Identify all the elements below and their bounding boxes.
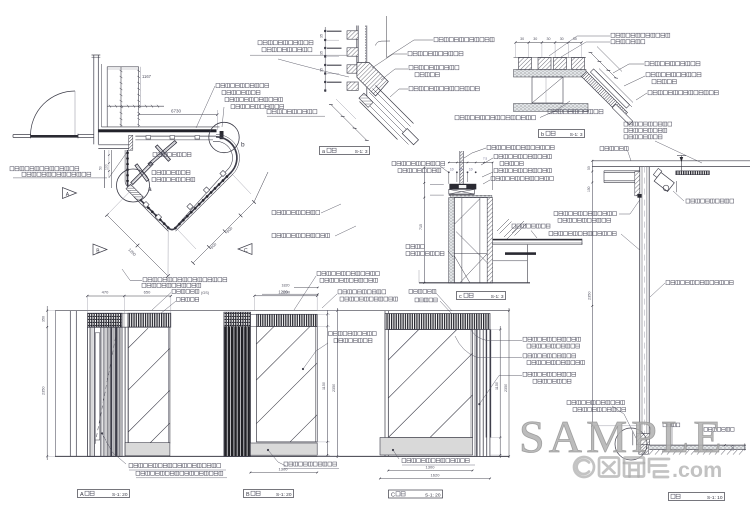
svg-text:2350: 2350 — [332, 384, 336, 392]
svg-text:1150: 1150 — [495, 382, 499, 390]
svg-text:S-1: 3: S-1: 3 — [570, 132, 583, 138]
svg-text:1820: 1820 — [282, 284, 290, 288]
svg-text:50: 50 — [587, 166, 591, 170]
svg-text:B: B — [246, 492, 250, 498]
svg-text:2350: 2350 — [504, 384, 508, 392]
svg-text:35: 35 — [320, 34, 324, 38]
svg-text:b: b — [241, 142, 245, 149]
svg-text:SAMPLE: SAMPLE — [519, 411, 726, 462]
svg-text:C: C — [391, 492, 395, 498]
svg-text:S-1: 3: S-1: 3 — [355, 149, 368, 155]
svg-text:30: 30 — [560, 37, 564, 41]
svg-text:S-1: 10: S-1: 10 — [707, 495, 723, 501]
svg-text:S-1: 3: S-1: 3 — [491, 294, 504, 300]
svg-text:10: 10 — [450, 168, 454, 172]
svg-text:(GS): (GS) — [201, 291, 210, 295]
svg-text:.com: .com — [672, 458, 722, 482]
svg-text:1300: 1300 — [279, 467, 289, 472]
svg-text:b: b — [541, 132, 544, 138]
svg-text:50: 50 — [99, 166, 103, 170]
svg-text:10: 10 — [469, 168, 473, 172]
svg-text:S-1: 20: S-1: 20 — [112, 492, 128, 498]
svg-text:30: 30 — [533, 37, 537, 41]
svg-text:S-1: 20: S-1: 20 — [425, 492, 441, 498]
svg-text:c: c — [459, 294, 462, 300]
svg-text:650: 650 — [144, 290, 151, 295]
svg-text:a: a — [148, 186, 152, 193]
svg-text:715: 715 — [419, 224, 423, 230]
svg-text:C: C — [244, 248, 248, 254]
svg-text:1300: 1300 — [426, 465, 436, 470]
svg-text:1620: 1620 — [431, 473, 441, 478]
svg-text:6730: 6730 — [171, 108, 182, 113]
svg-text:30: 30 — [547, 37, 551, 41]
svg-text:1200: 1200 — [282, 290, 290, 294]
svg-text:2350: 2350 — [42, 387, 46, 395]
svg-text:350: 350 — [42, 316, 46, 322]
svg-text:100: 100 — [105, 164, 109, 170]
svg-text:35: 35 — [320, 51, 324, 55]
svg-text:2350: 2350 — [587, 292, 591, 300]
svg-text:1167: 1167 — [142, 74, 152, 79]
svg-text:470: 470 — [102, 290, 109, 295]
svg-text:45: 45 — [459, 168, 463, 172]
svg-text:1150: 1150 — [322, 382, 326, 390]
svg-text:150: 150 — [587, 186, 591, 192]
svg-text:S-1: 20: S-1: 20 — [276, 492, 292, 498]
svg-text:A: A — [80, 492, 84, 498]
svg-text:30: 30 — [520, 37, 524, 41]
svg-text:7.5: 7.5 — [483, 157, 488, 161]
svg-text:150: 150 — [731, 445, 735, 451]
